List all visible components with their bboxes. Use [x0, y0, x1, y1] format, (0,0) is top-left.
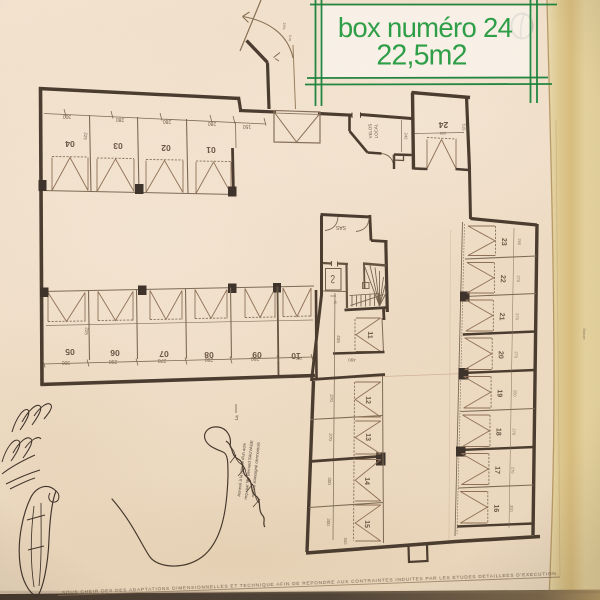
svg-text:box numéro 24: box numéro 24 [338, 12, 513, 43]
svg-text:22,5m2: 22,5m2 [376, 40, 466, 72]
